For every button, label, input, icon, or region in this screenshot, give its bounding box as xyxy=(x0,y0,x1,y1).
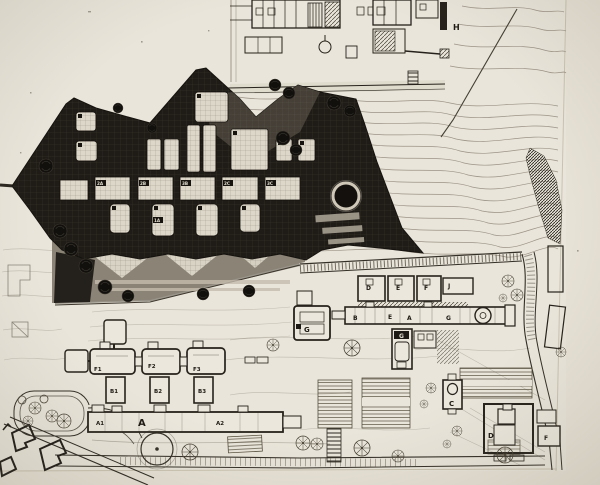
site-plan-drawing: H xyxy=(0,0,600,485)
photo-vignette xyxy=(0,0,600,485)
site-plan-photo: H xyxy=(0,0,600,485)
